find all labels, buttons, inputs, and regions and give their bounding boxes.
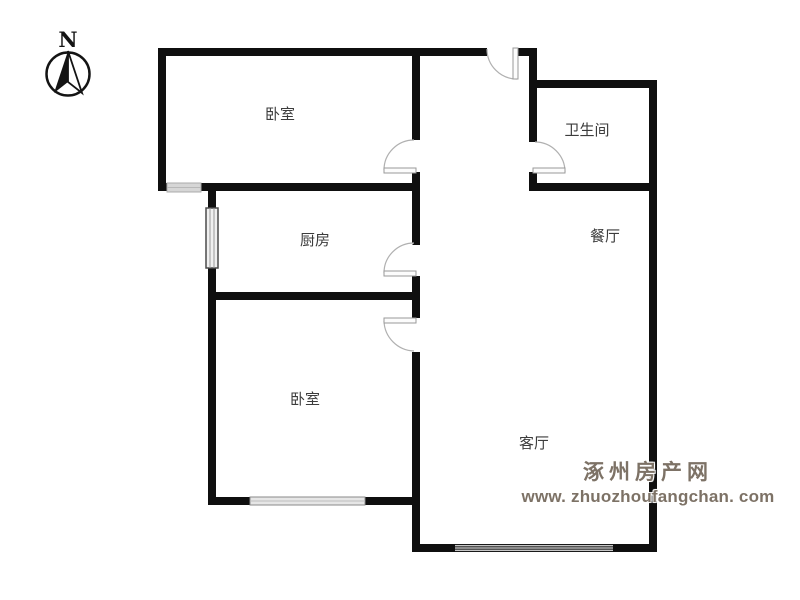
door-leaf <box>384 271 416 276</box>
compass-north-label: N <box>58 27 77 52</box>
wall-segment <box>529 172 537 191</box>
room-label-living: 客厅 <box>519 435 549 452</box>
door-arc <box>384 243 414 273</box>
wall-segment <box>208 292 420 300</box>
wall-segment <box>529 80 657 88</box>
door-bedroom-top <box>384 140 416 173</box>
window-living <box>455 544 613 552</box>
wall-segment <box>529 48 537 142</box>
wall-segment <box>412 48 420 140</box>
door-leaf <box>384 168 416 173</box>
floor-plan: 卧室 卫生间 餐厅 厨房 卧室 客厅 N <box>0 0 800 600</box>
door-leaf <box>384 318 416 323</box>
door-bathroom <box>533 142 565 173</box>
wall-segment <box>158 48 487 56</box>
window-bedroom-top <box>167 183 201 192</box>
wall-segment <box>412 172 420 245</box>
door-entry <box>487 48 518 79</box>
door-leaf <box>533 168 565 173</box>
door-leaf <box>513 48 518 79</box>
watermark-site-name: 涿州房产网 <box>506 456 790 486</box>
watermark-site-url: www. zhuozhoufangchan. com <box>506 487 790 507</box>
room-label-bedroom-top: 卧室 <box>265 106 295 123</box>
wall-segment <box>412 276 420 318</box>
wall-segment <box>529 183 657 191</box>
wall-segment <box>158 48 166 191</box>
compass-north-icon: N <box>47 27 90 96</box>
window-kitchen <box>206 208 218 268</box>
door-arc <box>384 140 414 170</box>
room-label-bedroom-bottom: 卧室 <box>290 391 320 408</box>
door-bedroom-bottom <box>384 318 416 351</box>
door-kitchen <box>384 243 416 276</box>
window-bedroom-bottom <box>250 497 365 505</box>
room-label-kitchen: 厨房 <box>300 232 330 249</box>
door-arc <box>384 321 414 351</box>
room-label-bathroom: 卫生间 <box>564 122 609 139</box>
wall-segment <box>412 352 420 552</box>
room-label-dining: 餐厅 <box>590 228 620 245</box>
watermark: 涿州房产网 www. zhuozhoufangchan. com <box>506 456 790 507</box>
